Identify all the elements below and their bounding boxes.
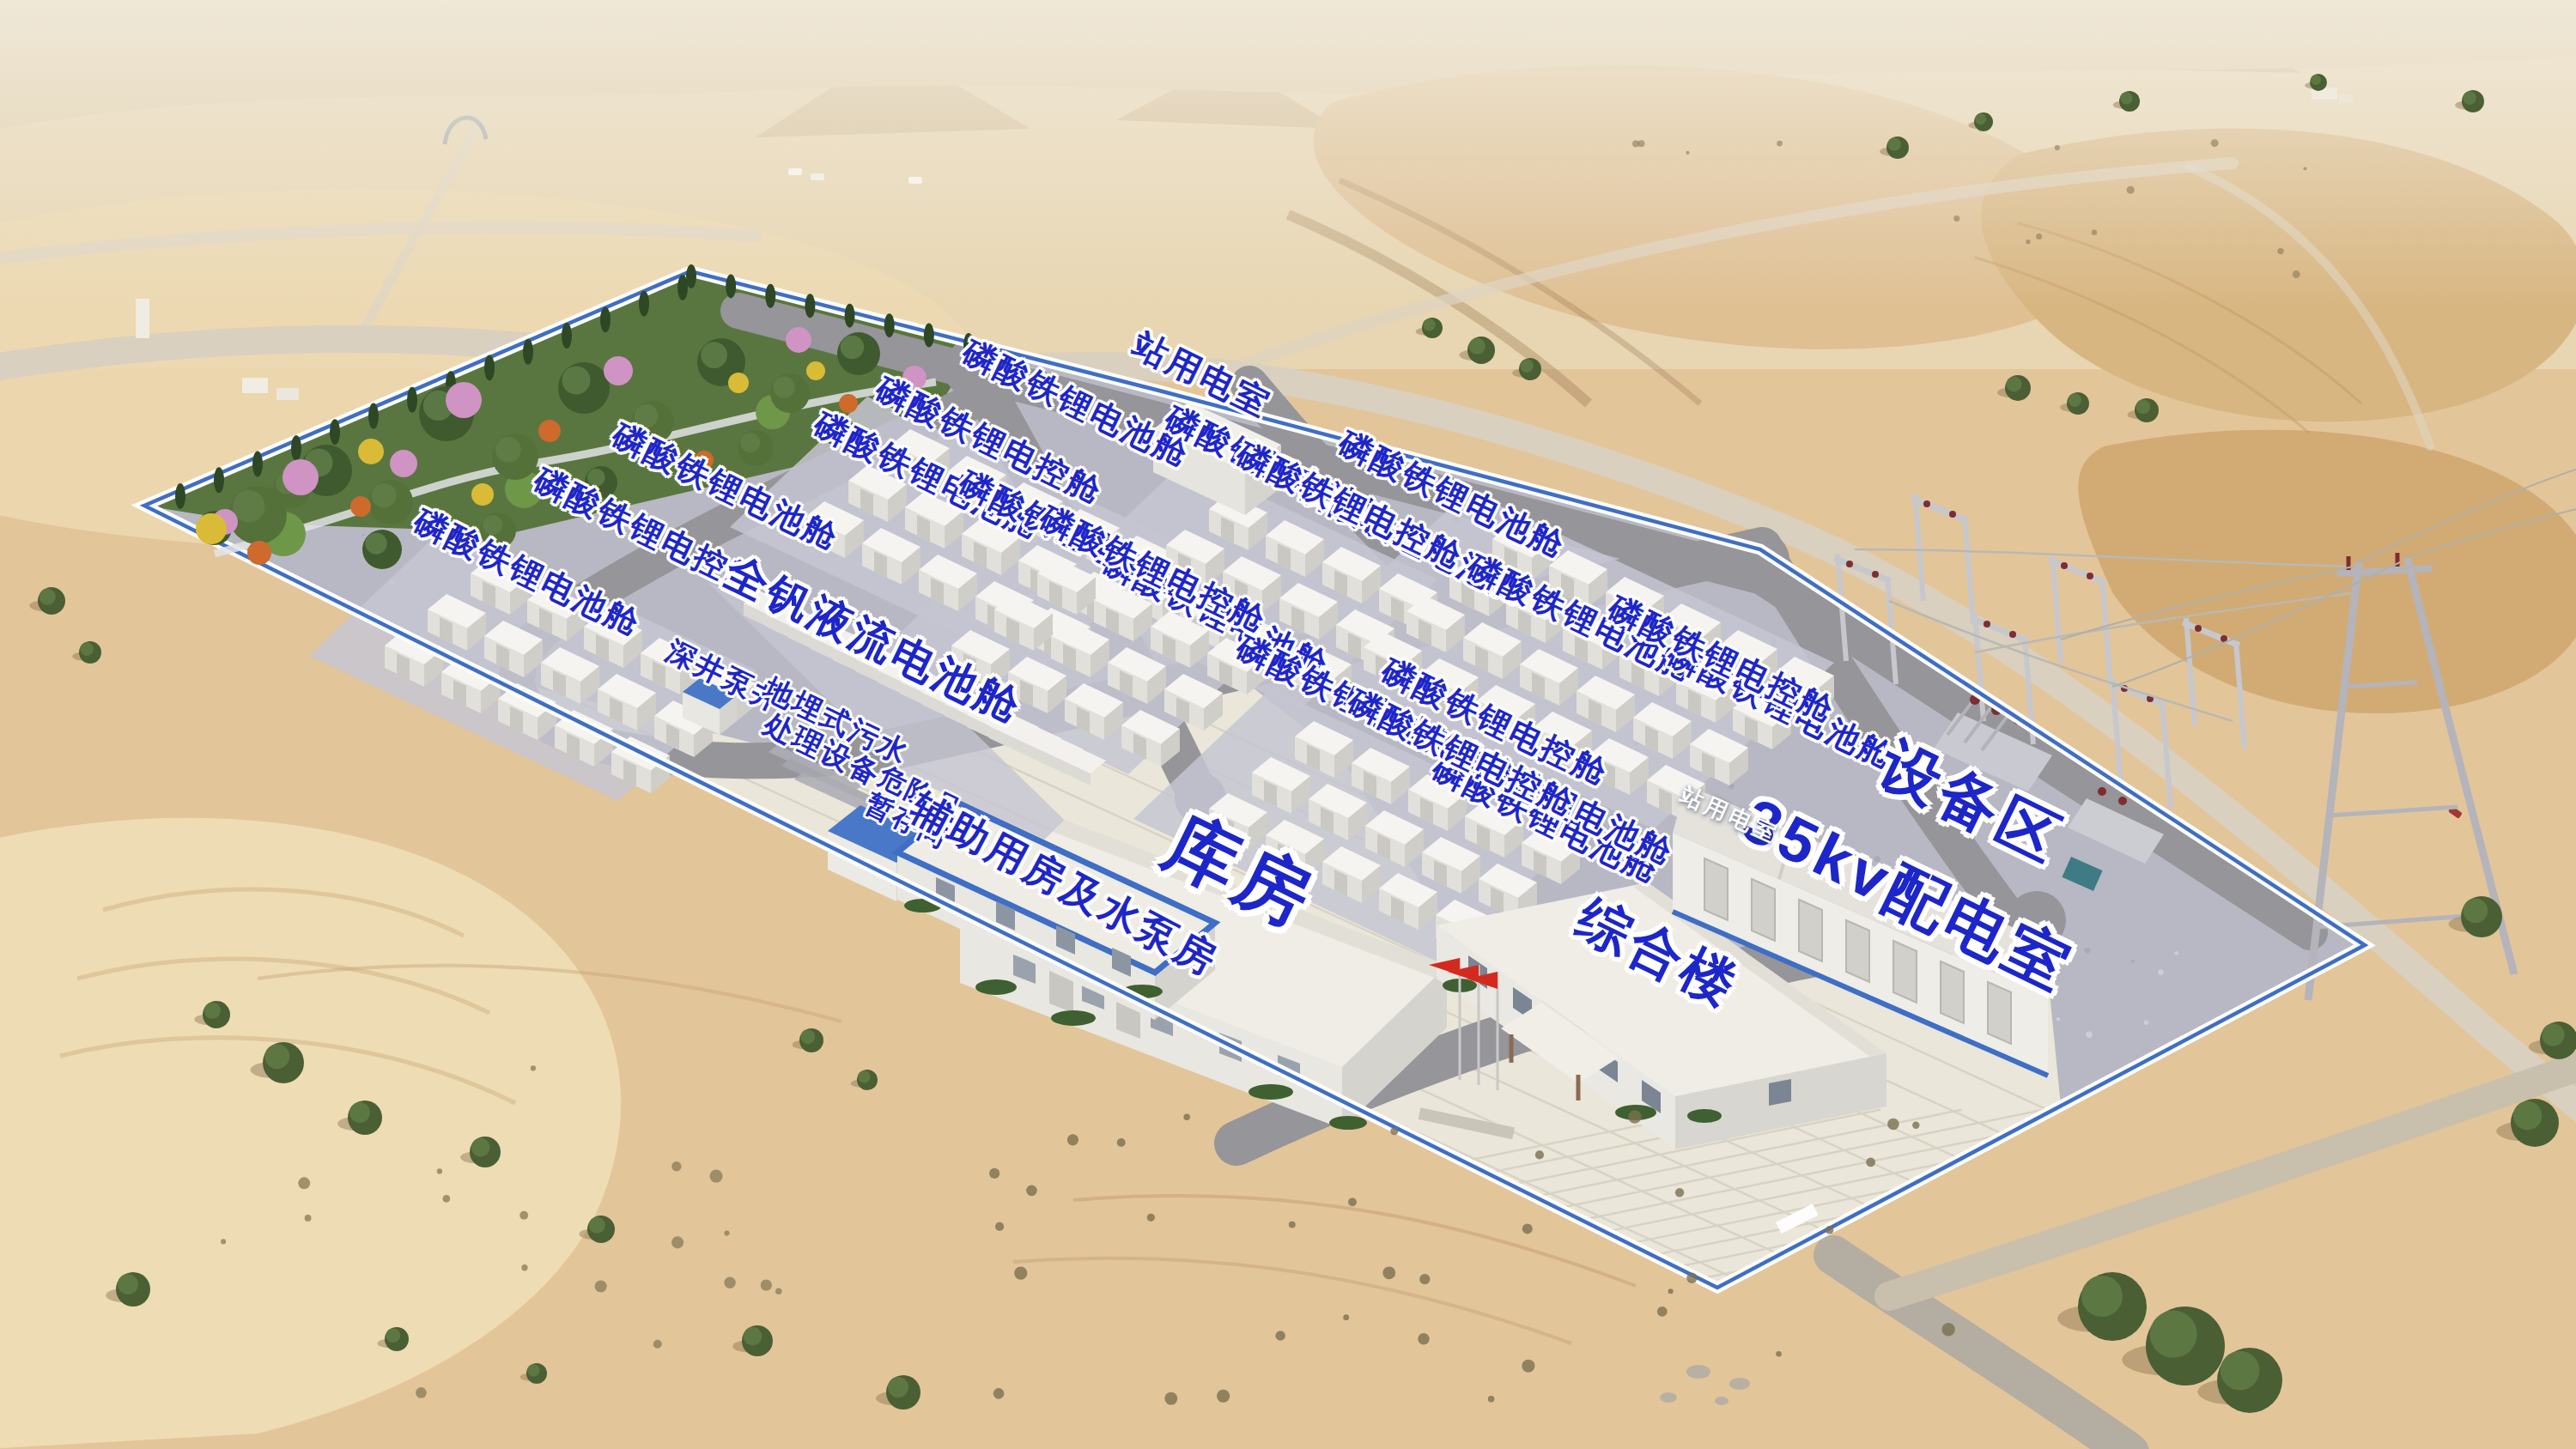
scene-background — [0, 0, 2576, 1449]
atmospheric-haze — [0, 0, 2576, 309]
aerial-site-rendering: 站用电室磷酸铁锂电池舱磷酸铁锂电池舱磷酸铁锂电池舱磷酸铁锂电池舱磷酸铁锂电池舱磷… — [0, 0, 2576, 1449]
